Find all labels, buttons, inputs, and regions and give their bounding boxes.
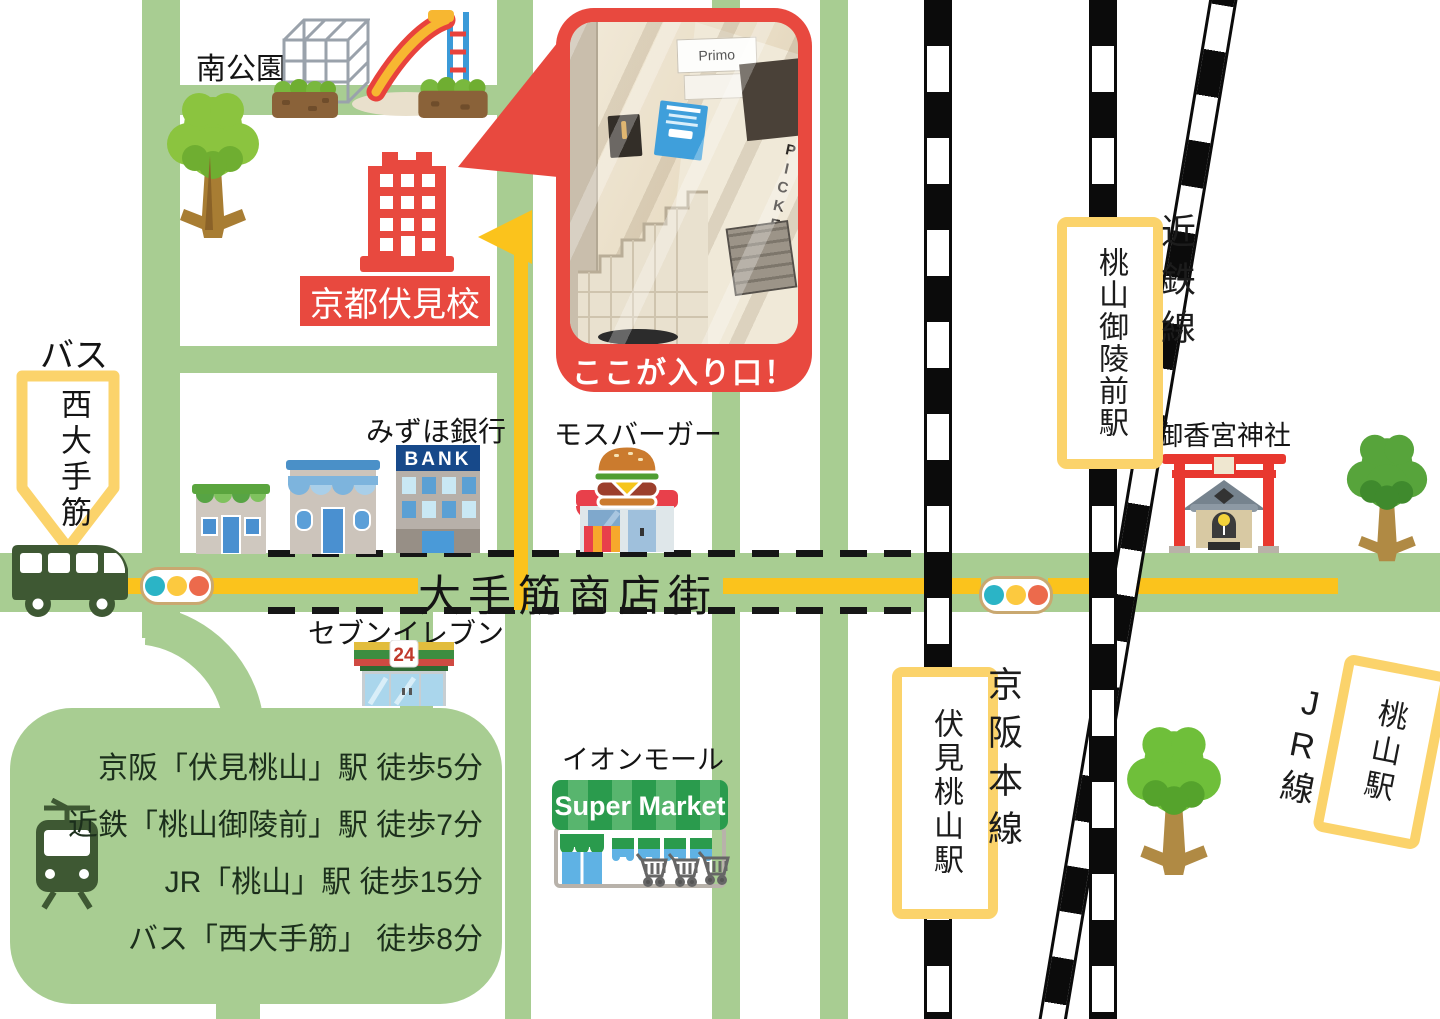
road-vertical-east	[820, 0, 848, 1019]
entrance-photo: Primo PICKET	[570, 22, 798, 344]
road-vertical-west	[142, 0, 180, 555]
bus-stop-name: 西大手筋	[51, 388, 96, 532]
road-horizontal-mid	[142, 346, 533, 373]
direction-line: 近鉄「桃山御陵前」駅 徒歩7分	[55, 797, 483, 854]
burger-shop-icon	[568, 440, 686, 554]
directions-text: 京阪「伏見桃山」駅 徒歩5分 近鉄「桃山御陵前」駅 徒歩7分 JR「桃山」駅 徒…	[55, 740, 483, 968]
jr-railway-line	[1089, 0, 1117, 1019]
shop-green-awning-icon	[192, 474, 270, 554]
road-below-street-right-of-panel	[505, 610, 531, 1019]
traffic-light-icon	[140, 567, 214, 605]
callout-caption: ここが入り口！	[556, 348, 812, 392]
supermarket-sign-text: Super Market	[554, 791, 725, 821]
direction-line: 京阪「伏見桃山」駅 徒歩5分	[55, 740, 483, 797]
station-name: 伏見桃山駅	[923, 708, 967, 878]
bank-icon: BANK	[392, 441, 484, 553]
school-label: 京都伏見校	[300, 276, 490, 326]
tree-icon	[1346, 424, 1428, 566]
shop-blue-awning-icon	[286, 454, 380, 554]
access-map: 大手筋商店街 南公園	[0, 0, 1440, 1019]
station-momoyama-goryomae: 桃山御陵前駅	[1057, 217, 1163, 469]
shrine-icon	[1162, 444, 1286, 562]
callout-tail	[456, 40, 560, 180]
station-momoyama: 桃山駅	[1312, 653, 1440, 850]
direction-line: JR「桃山」駅 徒歩15分	[55, 854, 483, 911]
tree-icon	[166, 86, 260, 238]
bus-icon	[4, 543, 136, 621]
station-name: 桃山駅	[1350, 695, 1414, 809]
bank-sign-text: BANK	[405, 449, 472, 470]
school-building-icon	[358, 140, 456, 278]
school-label-text: 京都伏見校	[310, 277, 480, 326]
kintetsu-line-label: 近鉄線	[1150, 213, 1201, 357]
tree-icon	[1116, 720, 1232, 875]
keihan-line-label: 京阪本線	[977, 666, 1028, 858]
direction-line: バス「西大手筋」 徒歩8分	[55, 911, 483, 968]
seven-badge-text: 24	[393, 645, 415, 666]
traffic-light-icon	[979, 576, 1053, 614]
photo-light-streaks	[570, 22, 798, 344]
station-name: 桃山御陵前駅	[1088, 247, 1132, 439]
supermarket-icon: Super Market	[546, 766, 734, 894]
seven-eleven-icon: 24	[352, 640, 456, 708]
entrance-callout: Primo PICKET ここが入り口！	[556, 8, 812, 392]
route-arrow-icon	[478, 210, 532, 264]
planter-icon	[272, 78, 338, 118]
route-line	[514, 226, 528, 610]
